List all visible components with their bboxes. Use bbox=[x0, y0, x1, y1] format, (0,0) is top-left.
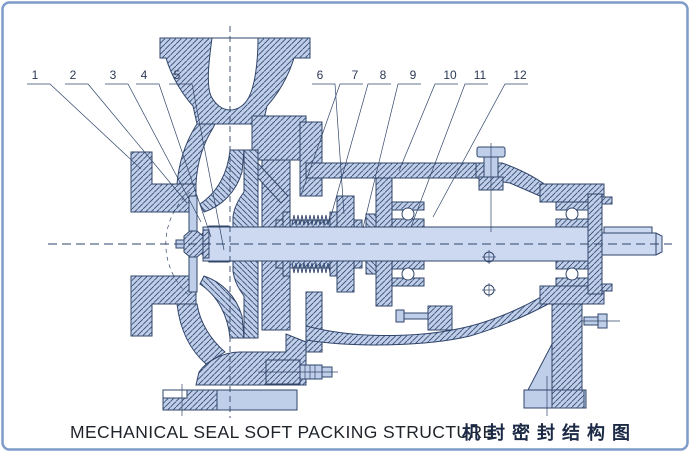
callout-number: 8 bbox=[380, 68, 387, 82]
callout-number: 11 bbox=[474, 68, 487, 82]
deflector bbox=[366, 214, 376, 227]
spring-seat bbox=[330, 212, 337, 227]
callout-number: 10 bbox=[443, 68, 457, 82]
shaft-key bbox=[604, 227, 652, 233]
casing-cover-bottom bbox=[306, 292, 322, 352]
oil-filler-cap bbox=[477, 143, 505, 232]
callout-number: 5 bbox=[174, 68, 181, 82]
bearing-seat-wall-bottom bbox=[376, 261, 392, 306]
bearing-seat-wall-top bbox=[376, 178, 392, 227]
callout-2: 2 bbox=[65, 68, 187, 203]
callout-1: 1 bbox=[27, 68, 141, 169]
drain-plug bbox=[258, 360, 338, 384]
callout-number: 1 bbox=[32, 68, 39, 82]
bracket-arm-top bbox=[306, 163, 476, 178]
casing-neck bbox=[252, 116, 306, 160]
spring-seat bbox=[330, 261, 337, 276]
cover-bolt bbox=[602, 284, 612, 291]
foot-gusset bbox=[528, 344, 552, 390]
foot-column bbox=[552, 304, 582, 390]
callout-leader-line bbox=[27, 84, 141, 169]
callout-10: 10 bbox=[399, 68, 458, 171]
support-foot bbox=[524, 304, 620, 416]
pump-casing bbox=[131, 38, 322, 385]
callout-number: 6 bbox=[317, 68, 324, 82]
callout-leader-line bbox=[399, 84, 458, 171]
callout-number: 4 bbox=[141, 68, 148, 82]
foot-base-section bbox=[552, 390, 584, 408]
callout-number: 12 bbox=[513, 68, 527, 82]
bracket-flange-block bbox=[428, 306, 452, 330]
caption-english: MECHANICAL SEAL SOFT PACKING STRUCTURE bbox=[70, 422, 495, 442]
callout-number: 2 bbox=[70, 68, 77, 82]
callout-number: 9 bbox=[410, 68, 417, 82]
callout-number: 7 bbox=[352, 68, 359, 82]
seal-gland-top bbox=[337, 196, 354, 227]
bracket-bolt-head bbox=[396, 310, 404, 322]
caption-chinese: 机封密封结构图 bbox=[462, 422, 637, 443]
casing-front-wall-lower bbox=[177, 304, 225, 364]
cover-bolt bbox=[602, 197, 612, 204]
bracket-bolt-shank bbox=[404, 313, 428, 319]
pump-cross-section-diagram: 123456789101112 MECHANICAL SEAL SOFT PAC… bbox=[0, 0, 690, 452]
deflector bbox=[366, 261, 376, 274]
spring-seat bbox=[283, 212, 290, 227]
spring-seat bbox=[283, 261, 290, 276]
diagram-page: 123456789101112 MECHANICAL SEAL SOFT PAC… bbox=[0, 0, 690, 452]
seal-gland-bottom bbox=[337, 261, 354, 292]
callout-number: 3 bbox=[110, 68, 117, 82]
oil-level-marks bbox=[482, 250, 496, 297]
casing-cover-top bbox=[300, 122, 322, 196]
callout-12: 12 bbox=[433, 68, 528, 217]
base-notch bbox=[163, 390, 187, 398]
